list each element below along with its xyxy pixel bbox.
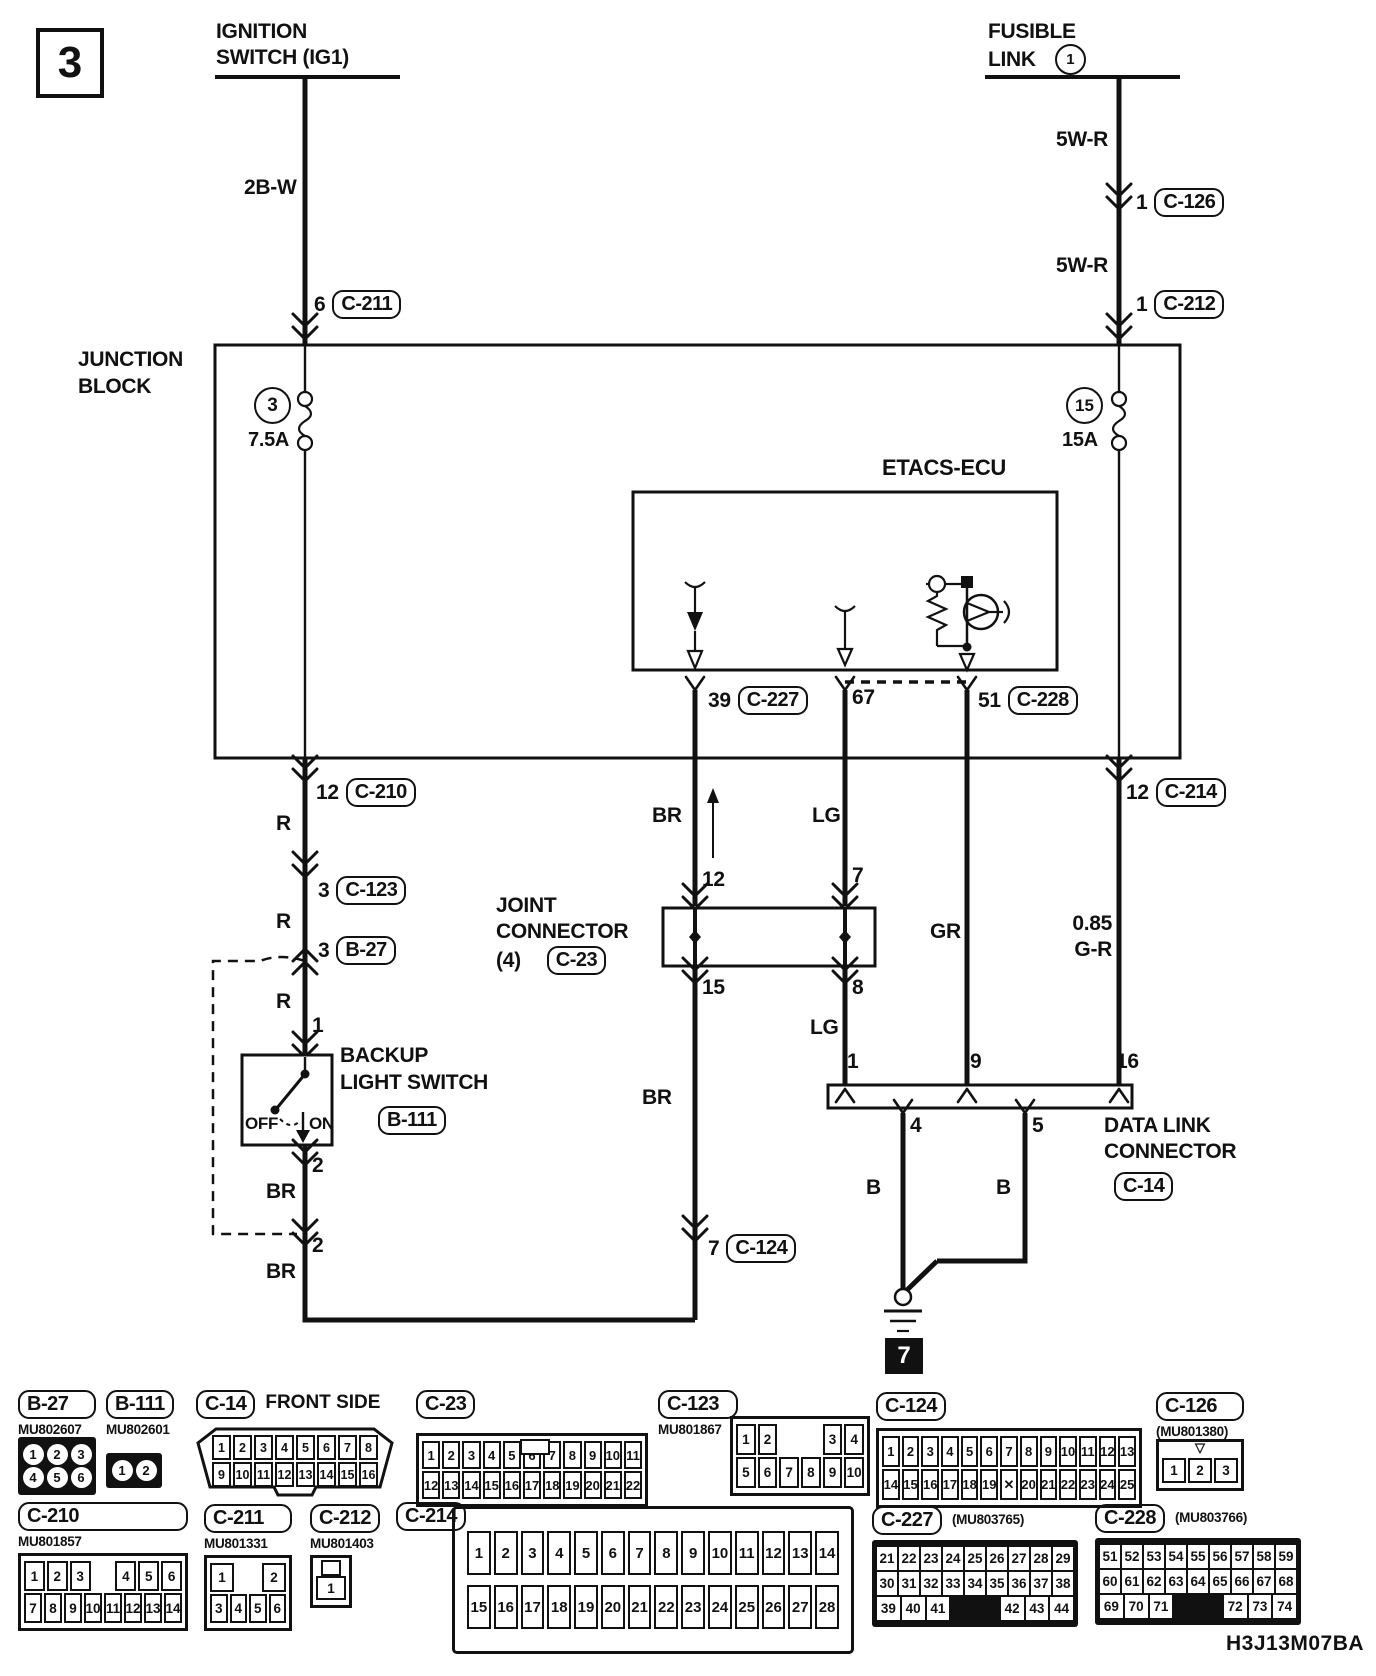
connector-pin: 72 <box>1224 1595 1247 1618</box>
fuse-rating-right: 15A <box>1062 428 1098 452</box>
connector-ref-c123: C-123 <box>336 876 406 905</box>
connector-pin-grid: 123456 <box>18 1437 96 1495</box>
connector-pin-row: 12345678910111213 <box>882 1436 1136 1467</box>
pin-number: 1 <box>1136 191 1147 215</box>
connector-pin: 19 <box>563 1471 581 1499</box>
connector-pin: 20 <box>601 1585 625 1629</box>
wire-label-085: 0.85 <box>1040 912 1112 936</box>
pin-number: 6 <box>314 293 325 317</box>
connector-pin: 2 <box>442 1441 460 1469</box>
connector-pin: 1 <box>467 1531 491 1575</box>
connector-pin: 1 <box>112 1460 133 1481</box>
connector-pin: 1 <box>23 1444 44 1465</box>
connector-pin: 14 <box>317 1462 336 1487</box>
connector-pin: 3 <box>462 1441 480 1469</box>
connector-pin: 2 <box>47 1561 68 1591</box>
connector-pin: 3 <box>70 1561 91 1591</box>
connector-pin-row: 123 <box>23 1444 91 1465</box>
connector-pin: 53 <box>1144 1545 1164 1568</box>
connector-pin: 6 <box>980 1436 998 1467</box>
connector-pin: 29 <box>1053 1547 1073 1570</box>
connector-pin-row: 123456 <box>24 1561 182 1591</box>
wire-label-r3: R <box>276 990 291 1014</box>
connector-ref-c228: C-228 <box>1008 686 1078 715</box>
connector-pin: 2 <box>233 1435 252 1460</box>
joint-connector-count: (4) <box>496 949 521 973</box>
connector-ref: B-27 <box>18 1390 96 1419</box>
connector-pin: 11 <box>1079 1436 1097 1467</box>
connector-pin: 33 <box>943 1572 963 1595</box>
connector-pin: 16 <box>359 1462 378 1487</box>
connector-pin: 44 <box>1050 1597 1073 1620</box>
connector-pin-row: 394041424344 <box>877 1597 1073 1620</box>
connector-pin: 54 <box>1166 1545 1186 1568</box>
connector-pin: 9 <box>64 1593 82 1623</box>
connector-c211: C-211 MU801331 123456 <box>204 1504 292 1631</box>
connector-latch <box>520 1439 550 1455</box>
connector-pin: 51 <box>1100 1545 1120 1568</box>
wire-label-5wr-upper: 5W-R <box>1056 128 1108 152</box>
dlc-pin-5: 5 <box>1032 1114 1043 1138</box>
connector-pin: 9 <box>212 1462 231 1487</box>
connector-pin: 16 <box>921 1469 939 1500</box>
connector-pin: 62 <box>1144 1570 1164 1593</box>
wire-label-r1: R <box>276 812 291 836</box>
connector-ref: B-111 <box>106 1390 174 1419</box>
connector-pin: 8 <box>563 1441 581 1469</box>
connector-pin: 1 <box>1162 1458 1186 1483</box>
connector-pin: 23 <box>1079 1469 1097 1500</box>
connector-pin-grid: 1234567891011121314 <box>18 1553 188 1631</box>
connector-pin: 7 <box>779 1457 799 1488</box>
connector-part-number: MU801403 <box>310 1536 380 1551</box>
connector-pin: 8 <box>1020 1436 1038 1467</box>
connector-pin: 10 <box>84 1593 102 1623</box>
connector-pin: 64 <box>1188 1570 1208 1593</box>
connector-pin: 10 <box>708 1531 732 1575</box>
connector-pin: 23 <box>921 1547 941 1570</box>
wire-label-b1: B <box>866 1176 881 1200</box>
connector-pin-row: 1213141516171819202122 <box>422 1471 642 1499</box>
connector-pin: 58 <box>1254 1545 1274 1568</box>
connector-pin-row: 910111213141516 <box>212 1462 378 1487</box>
connector-pin: 60 <box>1100 1570 1120 1593</box>
connector-pin: 57 <box>1232 1545 1252 1568</box>
connector-pin: 2 <box>136 1460 157 1481</box>
connector-pin: 17 <box>521 1585 545 1629</box>
connector-pin: 20 <box>584 1471 602 1499</box>
junction-block-label: JUNCTION <box>78 348 183 372</box>
pin-ref-c211: 6 C-211 <box>314 290 401 319</box>
pin-ref-c227: 39 C-227 <box>708 686 808 715</box>
pin-ref-c214: 12 C-214 <box>1126 778 1226 807</box>
connector-pin: 15 <box>338 1462 357 1487</box>
connector-pin-grid: 1234567891011121314151617181920212223242… <box>452 1506 854 1654</box>
connector-pin: 21 <box>877 1547 897 1570</box>
connector-ref-c210: C-210 <box>346 778 416 807</box>
connector-pin: 68 <box>1276 1570 1296 1593</box>
connector-pin-row: 303132333435363738 <box>877 1572 1073 1595</box>
connector-pin: 3 <box>521 1531 545 1575</box>
joint-connector-label-2: CONNECTOR <box>496 920 628 944</box>
connector-pin: 27 <box>788 1585 812 1629</box>
connector-c227: C-227 (MU803765) 21222324252627282930313… <box>872 1506 1078 1627</box>
pin-ref-c124: 7 C-124 <box>708 1234 796 1263</box>
connector-pin-row: 12 <box>210 1563 286 1592</box>
connector-pin-grid: 5152535455565758596061626364656667686970… <box>1095 1538 1301 1625</box>
connector-pin: 63 <box>1166 1570 1186 1593</box>
jc-pin-12: 12 <box>702 868 725 892</box>
connector-pin: 5 <box>47 1467 68 1488</box>
connector-pin: 4 <box>941 1436 959 1467</box>
jc-pin-7: 7 <box>852 864 863 888</box>
pin-ref-c212: 1 C-212 <box>1136 290 1224 319</box>
keyway-arrow-icon: ▽ <box>1195 1441 1205 1454</box>
connector-pin: 22 <box>1059 1469 1077 1500</box>
connector-pin: 19 <box>574 1585 598 1629</box>
connector-c228: C-228 (MU803766) 51525354555657585960616… <box>1095 1504 1301 1625</box>
connector-pin: 4 <box>115 1561 136 1591</box>
connector-pin-row: 12345678 <box>212 1435 378 1460</box>
connector-pin: 20 <box>1020 1469 1038 1500</box>
connector-pin: 52 <box>1122 1545 1142 1568</box>
fusible-link-word: LINK <box>988 48 1036 72</box>
connector-pin-grid: 12345678910111213141516171819✕2021222324… <box>876 1428 1142 1508</box>
connector-pin-grid: 12 <box>106 1453 162 1488</box>
connector-pin-row: 123 <box>1162 1458 1238 1483</box>
connector-pin: 6 <box>317 1435 336 1460</box>
connector-pin: 66 <box>1232 1570 1252 1593</box>
connector-pin-row: 12 <box>111 1460 157 1481</box>
connector-pin: 67 <box>1254 1570 1274 1593</box>
connector-pin: 9 <box>681 1531 705 1575</box>
connector-pin: 25 <box>965 1547 985 1570</box>
connector-pin: 15 <box>483 1471 501 1499</box>
connector-pin: 5 <box>138 1561 159 1591</box>
connector-pin: 3 <box>921 1436 939 1467</box>
connector-pin: 28 <box>815 1585 839 1629</box>
backup-switch-label: BACKUP <box>340 1044 428 1068</box>
connector-pin: 1 <box>212 1435 231 1460</box>
wire-label-b2: B <box>996 1176 1011 1200</box>
pin-ref-c210: 12 C-210 <box>316 778 416 807</box>
connector-pin: 2 <box>1188 1458 1212 1483</box>
connector-pin: 34 <box>965 1572 985 1595</box>
connector-pin: 2 <box>494 1531 518 1575</box>
fusible-link-label-2: LINK 1 <box>988 44 1086 75</box>
connector-ref: C-123 <box>658 1390 738 1419</box>
connector-pin: 9 <box>823 1457 843 1488</box>
wire-label-r2: R <box>276 910 291 934</box>
switch-off-label: OFF <box>245 1112 278 1136</box>
switch-pin-2b: 2 <box>312 1234 323 1258</box>
connector-part-number: MU801867 <box>658 1422 738 1437</box>
connector-pin: 6 <box>71 1467 92 1488</box>
dlc-pin-9: 9 <box>970 1050 981 1074</box>
connector-pin: 10 <box>1059 1436 1077 1467</box>
connector-pin: 38 <box>1053 1572 1073 1595</box>
switch-pin-1: 1 <box>312 1014 323 1038</box>
connector-pin: 59 <box>1276 1545 1296 1568</box>
connector-pin: 4 <box>23 1467 44 1488</box>
pin-number: 7 <box>708 1237 719 1261</box>
connector-pin: 18 <box>547 1585 571 1629</box>
connector-pin: 7 <box>338 1435 357 1460</box>
connector-pin: 71 <box>1150 1595 1173 1618</box>
connector-ref-c212: C-212 <box>1154 290 1224 319</box>
connector-c214: C-214 1234567891011121314151617181920212… <box>396 1502 866 1662</box>
fuse-number-left: 3 <box>254 387 291 424</box>
connector-pin: 4 <box>230 1594 248 1623</box>
connector-pin: 26 <box>987 1547 1007 1570</box>
connector-pin: 1 <box>316 1576 346 1600</box>
connector-pin: 19 <box>980 1469 998 1500</box>
connector-pin: 10 <box>844 1457 864 1488</box>
connector-pin-grid: 12345678910 <box>730 1416 870 1496</box>
connector-part-number: (MU803766) <box>1175 1510 1247 1525</box>
connector-pin: 5 <box>249 1594 267 1623</box>
connector-pin: 1 <box>422 1441 440 1469</box>
connector-pin: 25 <box>1118 1469 1136 1500</box>
connector-pin: 7 <box>1000 1436 1018 1467</box>
connector-pin: 16 <box>503 1471 521 1499</box>
connector-ref-c124: C-124 <box>726 1234 796 1263</box>
connector-ref-c227: C-227 <box>738 686 808 715</box>
connector-ref: C-228 <box>1095 1504 1165 1533</box>
connector-pin: 11 <box>254 1462 273 1487</box>
connector-ref-c211: C-211 <box>332 290 401 319</box>
connector-pin: 11 <box>735 1531 759 1575</box>
connector-pin: 8 <box>359 1435 378 1460</box>
connector-pin: 28 <box>1031 1547 1051 1570</box>
connector-pin: 5 <box>961 1436 979 1467</box>
diagram-code: H3J13M07BA <box>1226 1632 1364 1656</box>
fuse-number-right: 15 <box>1066 387 1103 424</box>
connector-c210: C-210 MU801857 1234567891011121314 <box>18 1502 188 1631</box>
connector-pin: 4 <box>483 1441 501 1469</box>
connector-part-number: (MU801380) <box>1156 1424 1244 1439</box>
pin-ref-c228: 51 C-228 <box>978 686 1078 715</box>
joint-connector-label-3: (4) C-23 <box>496 946 606 975</box>
connector-pin: 12 <box>275 1462 294 1487</box>
connector-pin: 70 <box>1125 1595 1148 1618</box>
connector-b27: B-27 MU802607 123456 <box>18 1390 96 1495</box>
connector-pin: 5 <box>296 1435 315 1460</box>
ignition-switch-label-2: SWITCH (IG1) <box>216 46 349 70</box>
connector-pin: 65 <box>1210 1570 1230 1593</box>
connector-pin-row: 1 <box>316 1576 346 1600</box>
connector-pin: 5 <box>503 1441 521 1469</box>
wire-label-gr: GR <box>930 920 961 944</box>
connector-part-number: (MU803765) <box>952 1512 1024 1527</box>
connector-ref-c214: C-214 <box>1156 778 1226 807</box>
pin-ref-b27: 3 B-27 <box>318 936 396 965</box>
connector-pin: 15 <box>902 1469 920 1500</box>
connector-b111: B-111 MU802601 12 <box>106 1390 174 1488</box>
pin-ref-c126: 1 C-126 <box>1136 188 1224 217</box>
connector-ref-b27: B-27 <box>336 936 395 965</box>
connector-pin: 12 <box>1099 1436 1117 1467</box>
connector-pin: 1 <box>882 1436 900 1467</box>
connector-pin: 37 <box>1031 1572 1051 1595</box>
connector-pin: ✕ <box>1000 1469 1018 1500</box>
connector-pin: 5 <box>736 1457 756 1488</box>
wire-label-br1: BR <box>652 804 682 828</box>
switch-on-label: ON <box>309 1112 334 1136</box>
connector-pin: 2 <box>758 1424 778 1455</box>
connector-pin: 2 <box>262 1563 286 1592</box>
connector-pin: 11 <box>624 1441 642 1469</box>
pin-67: 67 <box>852 686 875 710</box>
connector-pin: 9 <box>1040 1436 1058 1467</box>
connector-pin: 36 <box>1009 1572 1029 1595</box>
pin-number: 12 <box>1126 781 1149 805</box>
connector-pin: 18 <box>961 1469 979 1500</box>
connector-c126: C-126 (MU801380) ▽123 <box>1156 1392 1244 1491</box>
connector-pin-row: 606162636465666768 <box>1100 1570 1296 1593</box>
wire-label-2bw: 2B-W <box>244 176 296 200</box>
connector-pin-grid: 12345678910111213141516 <box>212 1433 378 1489</box>
connector-pin: 12 <box>422 1471 440 1499</box>
connector-pin-row: 212223242526272829 <box>877 1547 1073 1570</box>
connector-ref-c23: C-23 <box>547 946 606 975</box>
connector-pin: 2 <box>47 1444 68 1465</box>
connector-pin: 16 <box>494 1585 518 1629</box>
connector-pin: 55 <box>1188 1545 1208 1568</box>
connector-pin: 1 <box>210 1563 234 1592</box>
connector-pin: 1 <box>24 1561 45 1591</box>
dlc-pin-1: 1 <box>847 1050 858 1074</box>
connector-pin-row: 7891011121314 <box>24 1593 182 1623</box>
connector-pin: 41 <box>927 1597 950 1620</box>
connector-pin-row: 1234 <box>736 1424 864 1455</box>
connector-pin: 8 <box>801 1457 821 1488</box>
wire-label-br3: BR <box>266 1260 296 1284</box>
connector-ref: C-126 <box>1156 1392 1244 1421</box>
connector-pin: 56 <box>1210 1545 1230 1568</box>
pin-number: 12 <box>316 781 339 805</box>
connector-pin: 13 <box>296 1462 315 1487</box>
connector-pin: 4 <box>844 1424 864 1455</box>
connector-pin: 14 <box>815 1531 839 1575</box>
connector-pin: 24 <box>708 1585 732 1629</box>
connector-pin: 26 <box>762 1585 786 1629</box>
connector-part-number: MU801857 <box>18 1534 188 1549</box>
connector-ref-b111: B-111 <box>378 1106 446 1135</box>
connector-pin-grid: 123456 <box>204 1555 292 1631</box>
connector-pin-row: 1516171819202122232425262728 <box>467 1585 839 1629</box>
connector-pin: 21 <box>1040 1469 1058 1500</box>
switch-pin-2: 2 <box>312 1154 323 1178</box>
connector-pin: 7 <box>24 1593 42 1623</box>
connector-ref-c126: C-126 <box>1154 188 1224 217</box>
wire-label-lg2: LG <box>810 1016 839 1040</box>
connector-pin: 14 <box>462 1471 480 1499</box>
pin-ref-c123: 3 C-123 <box>318 876 406 905</box>
wire-label-5wr-lower: 5W-R <box>1056 254 1108 278</box>
connector-c123: C-123 MU801867 12345678910 <box>658 1390 870 1500</box>
connector-pin: 10 <box>233 1462 252 1487</box>
connector-pin: 39 <box>877 1597 900 1620</box>
connector-pin: 35 <box>987 1572 1007 1595</box>
connector-pin: 9 <box>584 1441 602 1469</box>
jc-pin-15: 15 <box>702 976 725 1000</box>
pin-number: 39 <box>708 689 731 713</box>
connector-pin-row: 697071727374 <box>1100 1595 1296 1618</box>
connector-pin: 14 <box>164 1593 182 1623</box>
connector-pin: 2 <box>902 1436 920 1467</box>
joint-connector-label: JOINT <box>496 894 556 918</box>
connector-pin-row: 5678910 <box>736 1457 864 1488</box>
connector-pin: 32 <box>921 1572 941 1595</box>
connector-pin: 30 <box>877 1572 897 1595</box>
connector-pin-grid: 1 <box>310 1555 352 1608</box>
connector-pin: 42 <box>1001 1597 1024 1620</box>
connector-pin: 69 <box>1100 1595 1123 1618</box>
connector-pin: 10 <box>604 1441 622 1469</box>
pin-number: 3 <box>318 939 329 963</box>
ignition-switch-label: IGNITION <box>216 20 307 44</box>
connector-pin: 13 <box>144 1593 162 1623</box>
connector-pin: 25 <box>735 1585 759 1629</box>
connector-pin: 1 <box>736 1424 756 1455</box>
connector-pin: 43 <box>1026 1597 1049 1620</box>
connector-pin: 23 <box>681 1585 705 1629</box>
connector-pin: 24 <box>943 1547 963 1570</box>
connector-pin: 15 <box>467 1585 491 1629</box>
connector-pin: 22 <box>624 1471 642 1499</box>
pin-number: 1 <box>1136 293 1147 317</box>
connector-pin: 40 <box>902 1597 925 1620</box>
connector-pin-row: 456 <box>23 1467 91 1488</box>
connector-pin: 22 <box>899 1547 919 1570</box>
connector-pin: 18 <box>543 1471 561 1499</box>
data-link-label-2: CONNECTOR <box>1104 1140 1236 1164</box>
connector-c212: C-212 MU801403 1 <box>310 1504 380 1608</box>
connector-pin: 6 <box>601 1531 625 1575</box>
fusible-link-label: FUSIBLE <box>988 20 1076 44</box>
connector-pin-row: 515253545556575859 <box>1100 1545 1296 1568</box>
wire-label-br-mid: BR <box>642 1086 672 1110</box>
connector-part-number: MU801331 <box>204 1536 292 1551</box>
connector-pin: 11 <box>104 1593 122 1623</box>
junction-block-label-2: BLOCK <box>78 375 151 399</box>
connector-pin-grid: ▽123 <box>1156 1439 1244 1491</box>
connector-pin-row: 3456 <box>210 1594 286 1623</box>
connector-pin: 7 <box>628 1531 652 1575</box>
connector-pin: 3 <box>71 1444 92 1465</box>
jc-pin-8: 8 <box>852 976 863 1000</box>
connector-pin: 21 <box>604 1471 622 1499</box>
connector-pin: 6 <box>269 1594 287 1623</box>
connector-ref-c14: C-14 <box>1114 1172 1173 1201</box>
connector-pin: 61 <box>1122 1570 1142 1593</box>
connector-pin-grid: 2122232425262728293031323334353637383940… <box>872 1540 1078 1627</box>
connector-pin: 8 <box>44 1593 62 1623</box>
connector-c23: C-23 12345678910111213141516171819202122 <box>416 1390 648 1507</box>
connector-pin: 6 <box>161 1561 182 1591</box>
etacs-ecu-label: ETACS-ECU <box>882 456 1006 480</box>
connector-ref: C-211 <box>204 1504 292 1533</box>
connector-pin: 24 <box>1099 1469 1117 1500</box>
connector-ref: C-14 <box>196 1390 255 1419</box>
backup-switch-label-2: LIGHT SWITCH <box>340 1071 488 1095</box>
page-number-box: 3 <box>36 28 104 98</box>
connector-pin: 3 <box>823 1424 843 1455</box>
connector-pin: 12 <box>124 1593 142 1623</box>
connector-pin: 12 <box>762 1531 786 1575</box>
connector-note: FRONT SIDE <box>265 1392 380 1414</box>
